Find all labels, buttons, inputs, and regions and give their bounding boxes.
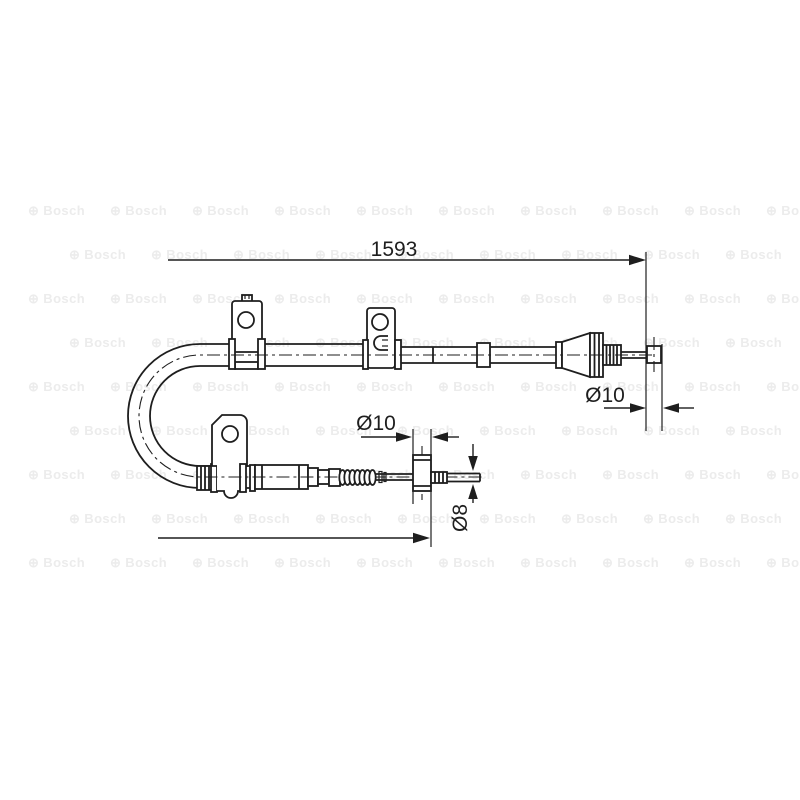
spring (339, 470, 375, 485)
arrowhead-right-icon (396, 432, 412, 442)
arrowhead-right-icon (629, 255, 646, 265)
bracket-1 (229, 295, 265, 369)
bracket-3-flange-right (240, 464, 246, 492)
arrowhead-left-icon (432, 432, 448, 442)
bracket-1-flange-left (229, 339, 235, 369)
dim-rod-dia-label: Ø8 (449, 504, 472, 532)
dimension-rod-dia: Ø8 (449, 444, 478, 532)
dimension-upper-dia: Ø10 (585, 384, 694, 413)
dim-length-label: 1593 (371, 238, 418, 261)
cable-diagram: 1593 Ø10 Ø10 Ø8 (0, 0, 800, 800)
lower-sleeve-assembly (250, 465, 340, 491)
bracket-3-flange-left (211, 464, 217, 492)
dimension-lower-length (158, 533, 430, 543)
arrowhead-left-icon (663, 403, 679, 413)
arrowhead-up-icon (468, 484, 478, 499)
product-image: ⊕ Bosch⊕ Bosch⊕ Bosch⊕ Bosch⊕ Bosch⊕ Bos… (0, 0, 800, 800)
arrowhead-right-icon (630, 403, 646, 413)
bracket-3-strap (212, 415, 247, 466)
bracket-1-flange-right (258, 339, 265, 369)
bracket-3-notch (217, 491, 240, 498)
arrowhead-down-icon (468, 456, 478, 471)
bracket-2 (363, 308, 401, 369)
dim-upper-dia-label: Ø10 (585, 384, 625, 407)
dim-lower-dia-label: Ø10 (356, 412, 396, 435)
bracket-3 (212, 415, 247, 498)
bracket-2-strap (367, 308, 395, 368)
arrowhead-right-icon (413, 533, 430, 543)
